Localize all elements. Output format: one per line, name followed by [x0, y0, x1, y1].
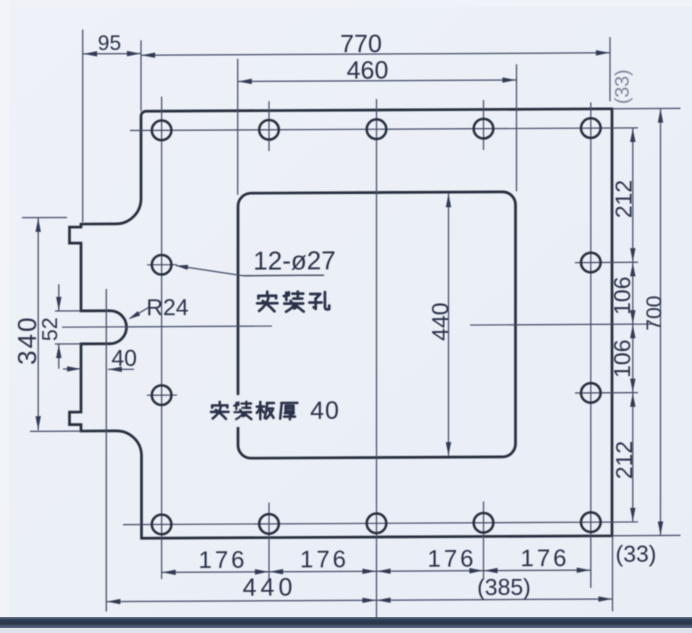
- svg-text:212: 212: [611, 180, 637, 219]
- svg-text:440: 440: [243, 573, 297, 601]
- svg-text:40: 40: [310, 397, 340, 425]
- svg-text:106: 106: [609, 276, 635, 315]
- svg-text:212: 212: [611, 441, 637, 480]
- svg-text:770: 770: [340, 30, 382, 58]
- svg-text:176: 176: [300, 546, 349, 573]
- svg-text:440: 440: [427, 302, 453, 341]
- svg-text:(33): (33): [612, 69, 634, 104]
- svg-text:176: 176: [198, 547, 247, 574]
- svg-text:460: 460: [347, 56, 389, 84]
- svg-text:40: 40: [111, 345, 137, 371]
- svg-text:95: 95: [98, 32, 121, 55]
- svg-text:176: 176: [427, 546, 476, 573]
- svg-text:106: 106: [609, 339, 635, 378]
- svg-text:R24: R24: [146, 294, 188, 320]
- svg-text:(385): (385): [477, 574, 531, 600]
- svg-text:340: 340: [12, 315, 42, 365]
- svg-text:176: 176: [520, 545, 569, 572]
- svg-text:(33): (33): [616, 541, 657, 567]
- svg-text:700: 700: [643, 295, 666, 330]
- svg-text:12-ø27: 12-ø27: [253, 245, 335, 275]
